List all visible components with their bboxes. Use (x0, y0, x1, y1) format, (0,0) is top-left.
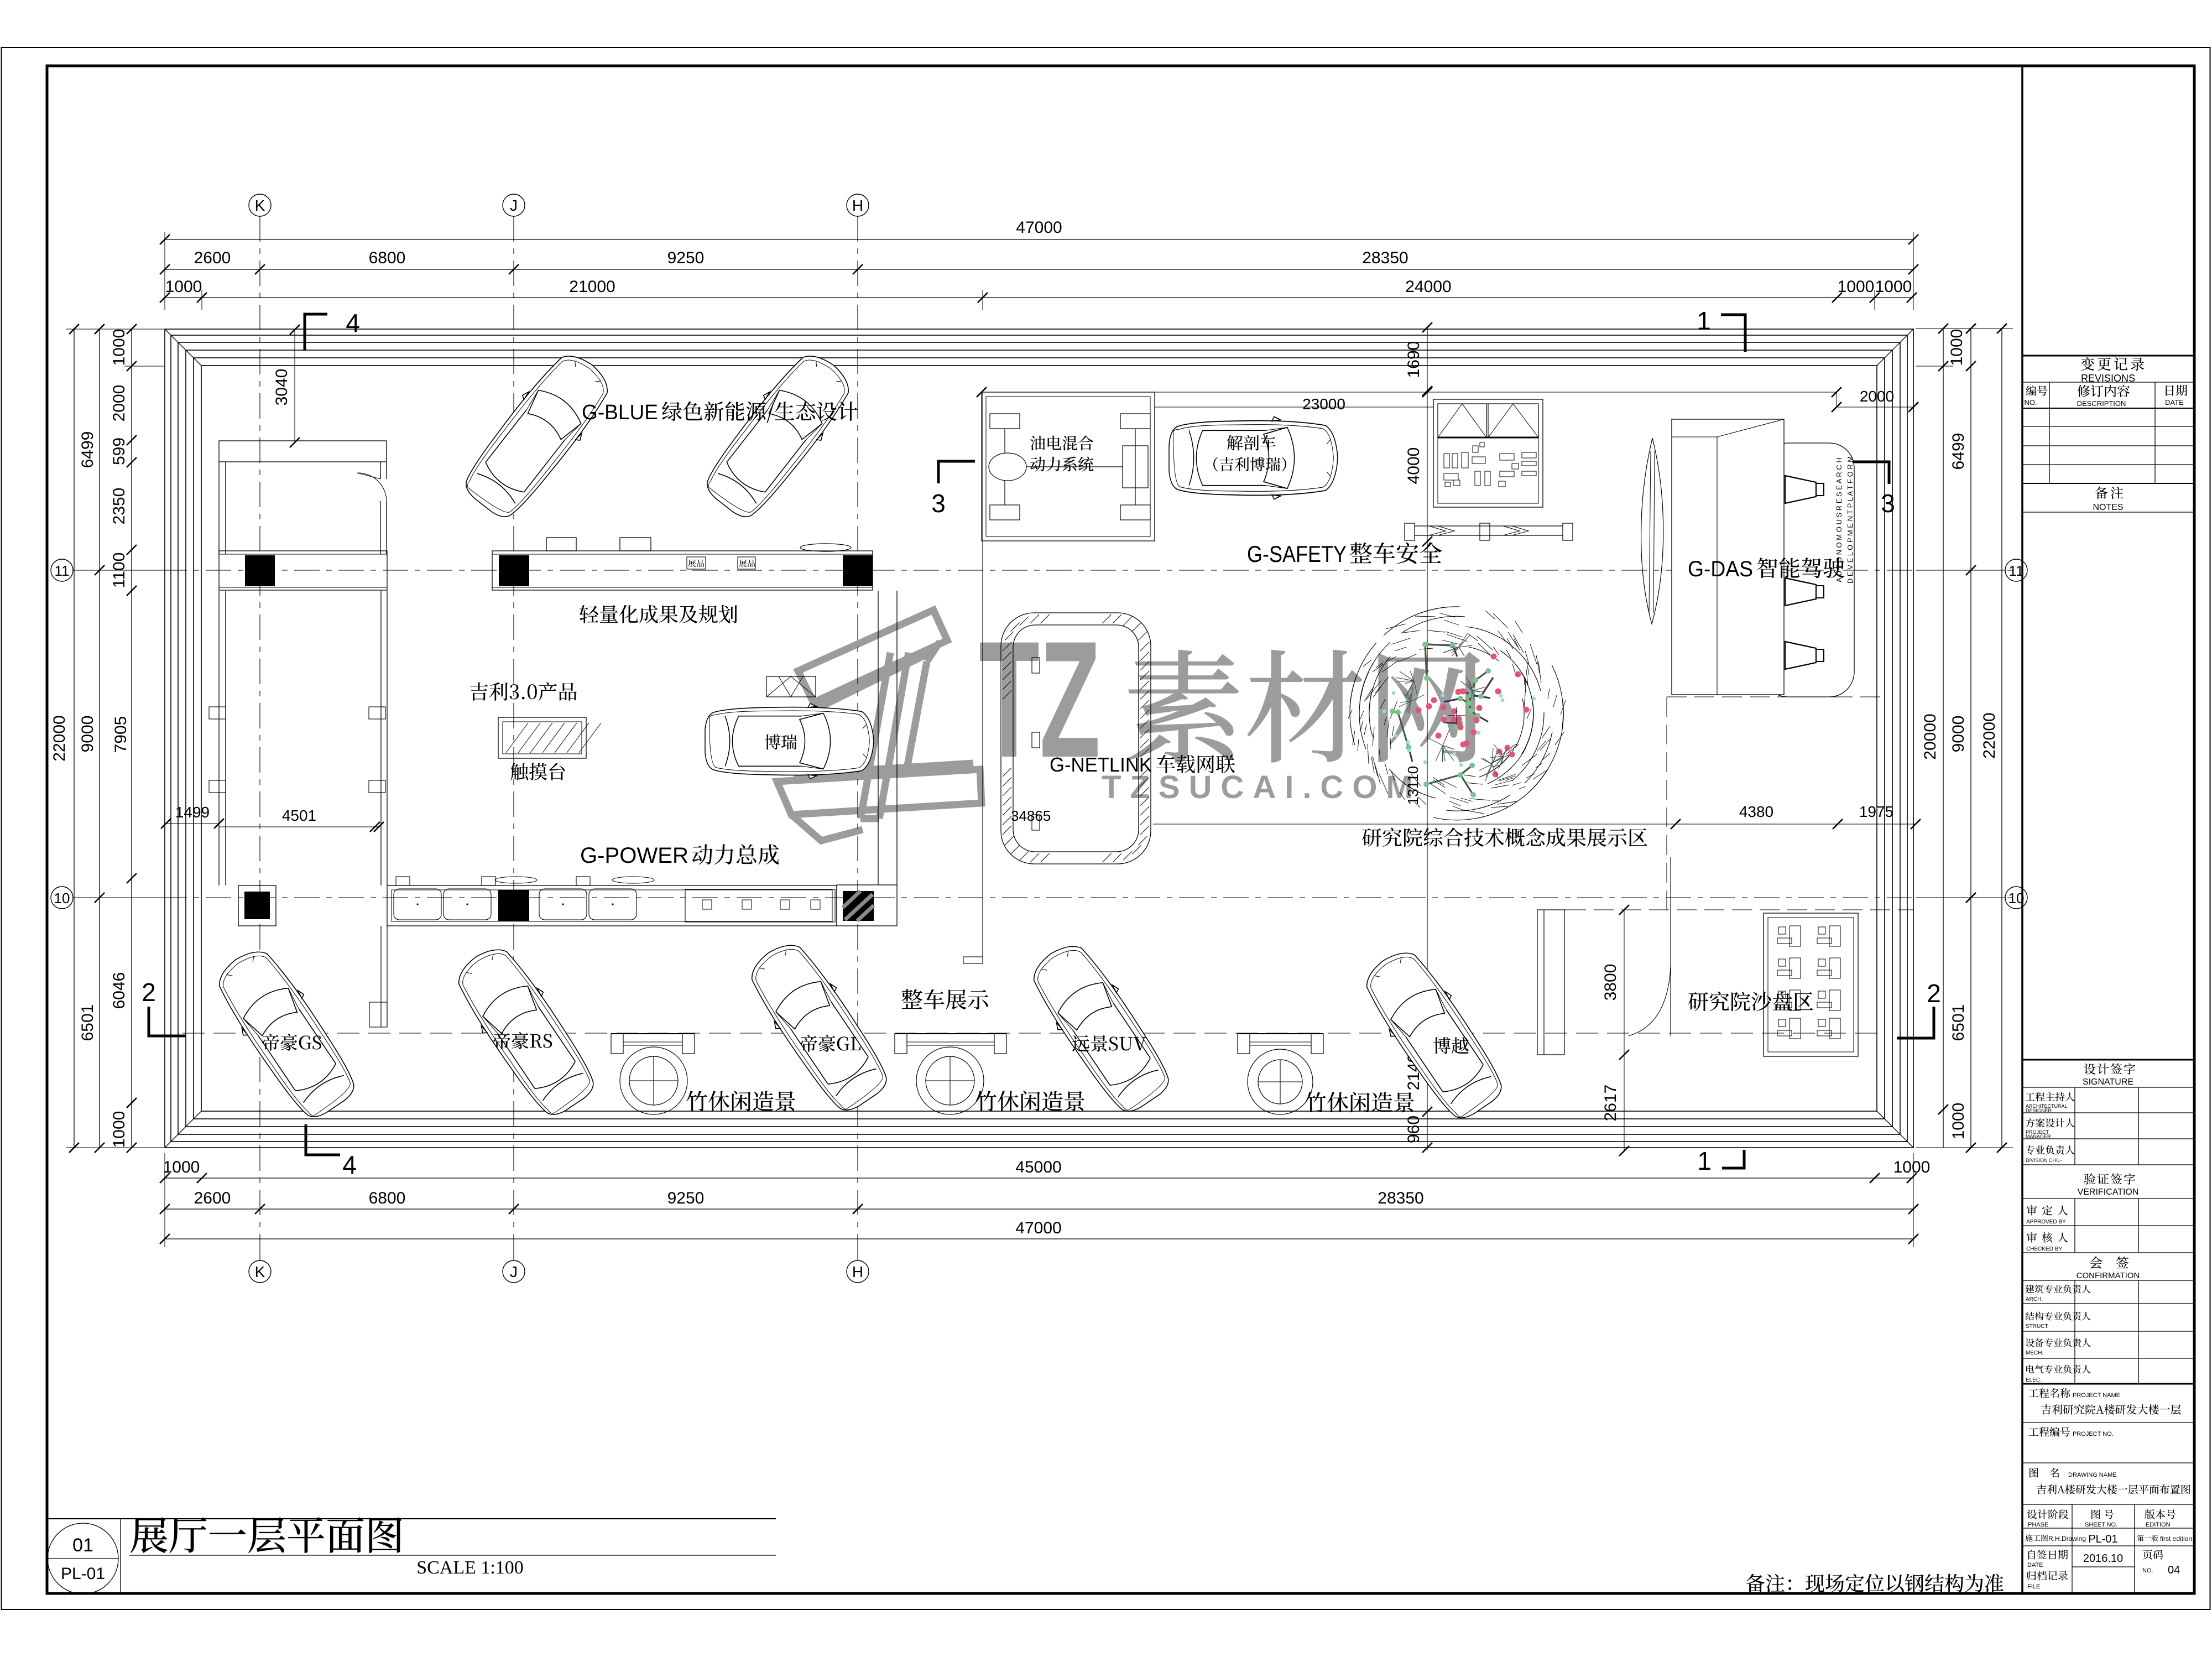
svg-text:2000: 2000 (1860, 388, 1894, 405)
svg-text:PL-01: PL-01 (61, 1565, 105, 1583)
svg-text:K: K (255, 1263, 265, 1280)
svg-text:04: 04 (2168, 1564, 2180, 1576)
svg-text:NOTES: NOTES (2093, 503, 2123, 512)
svg-text:SCALE 1:100: SCALE 1:100 (416, 1557, 524, 1578)
svg-text:6800: 6800 (369, 249, 406, 267)
svg-text:9000: 9000 (1949, 716, 1968, 753)
svg-text:1000: 1000 (1875, 278, 1912, 296)
svg-text:SIGNATURE: SIGNATURE (2083, 1077, 2133, 1087)
svg-text:6800: 6800 (369, 1189, 406, 1207)
svg-text:4: 4 (346, 309, 360, 337)
svg-text:1000: 1000 (1893, 1158, 1931, 1176)
svg-text:1000: 1000 (1838, 278, 1875, 296)
svg-text:DESCRIPTION: DESCRIPTION (2077, 399, 2126, 408)
svg-text:47000: 47000 (1015, 1219, 1061, 1237)
svg-text:1000: 1000 (110, 329, 128, 366)
svg-text:20000: 20000 (1921, 713, 1939, 759)
svg-text:9250: 9250 (667, 1189, 705, 1207)
svg-text:PROJECT NO.: PROJECT NO. (2073, 1431, 2114, 1437)
svg-text:1000: 1000 (165, 278, 202, 296)
svg-text:H: H (852, 1263, 863, 1280)
svg-text:NO.: NO. (2142, 1567, 2153, 1574)
svg-text:45000: 45000 (1015, 1158, 1061, 1176)
svg-text:3040: 3040 (273, 369, 291, 406)
svg-text:4501: 4501 (282, 807, 316, 824)
svg-text:2000: 2000 (110, 385, 128, 422)
svg-text:6501: 6501 (1949, 1004, 1968, 1041)
svg-text:599: 599 (110, 437, 128, 465)
svg-text:1975: 1975 (1859, 803, 1893, 820)
svg-text:2: 2 (142, 978, 156, 1007)
svg-text:ARCH.: ARCH. (2026, 1296, 2043, 1302)
svg-text:11: 11 (55, 562, 70, 579)
svg-text:4380: 4380 (1739, 803, 1773, 820)
svg-text:DATE: DATE (2027, 1562, 2043, 1569)
svg-text:MECH.: MECH. (2026, 1350, 2043, 1356)
svg-text:VERIFICATION: VERIFICATION (2078, 1187, 2139, 1197)
svg-text:STRUCT: STRUCT (2026, 1324, 2048, 1330)
svg-text:K: K (255, 197, 265, 214)
svg-text:NO.: NO. (2024, 398, 2037, 407)
svg-text:CHECKED BY: CHECKED BY (2026, 1246, 2062, 1252)
svg-text:EDITION: EDITION (2146, 1522, 2171, 1528)
svg-text:1000: 1000 (163, 1158, 200, 1176)
svg-text:DIVISION CHIL-: DIVISION CHIL- (2026, 1158, 2062, 1163)
svg-text:2350: 2350 (110, 488, 128, 525)
svg-text:H: H (852, 197, 863, 214)
svg-text:34865: 34865 (1011, 807, 1051, 824)
svg-text:DATE: DATE (2165, 398, 2184, 407)
svg-text:21000: 21000 (569, 278, 615, 296)
svg-text:CONFIRMATION: CONFIRMATION (2077, 1271, 2140, 1280)
svg-text:G-POWER: G-POWER (580, 843, 688, 868)
svg-text:6499: 6499 (79, 431, 97, 468)
svg-text:PHASE: PHASE (2028, 1522, 2048, 1528)
svg-text:1: 1 (1697, 306, 1711, 335)
svg-text:47000: 47000 (1016, 218, 1062, 237)
svg-text:960: 960 (1405, 1116, 1423, 1143)
svg-text:1000: 1000 (1949, 1103, 1968, 1140)
svg-text:first edition: first edition (2160, 1535, 2192, 1543)
svg-text:13110: 13110 (1405, 766, 1421, 805)
svg-text:2617: 2617 (1601, 1085, 1620, 1122)
svg-text:G-SAFETY: G-SAFETY (1247, 541, 1347, 567)
svg-text:6046: 6046 (110, 972, 128, 1009)
svg-text:28350: 28350 (1362, 249, 1408, 267)
svg-text:9250: 9250 (667, 249, 705, 267)
svg-text:ELEC.: ELEC. (2026, 1377, 2042, 1383)
svg-text:10: 10 (54, 890, 70, 906)
svg-text:FILE: FILE (2027, 1583, 2040, 1590)
svg-text:G-DAS: G-DAS (1688, 557, 1753, 581)
svg-text:4: 4 (342, 1150, 357, 1179)
svg-text:1499: 1499 (175, 804, 210, 821)
svg-text:DRAWING NAME: DRAWING NAME (2068, 1472, 2117, 1478)
svg-text:9000: 9000 (79, 716, 97, 753)
svg-text:SHEET NO.: SHEET NO. (2085, 1522, 2117, 1528)
svg-text:4000: 4000 (1405, 447, 1423, 484)
svg-text:3: 3 (931, 489, 946, 518)
svg-text:G-BLUE: G-BLUE (582, 401, 658, 424)
svg-text:28350: 28350 (1378, 1189, 1423, 1207)
svg-text:J: J (510, 1263, 518, 1280)
svg-text:G-NETLINK: G-NETLINK (1050, 753, 1152, 776)
svg-text:2600: 2600 (194, 249, 231, 267)
svg-text:3: 3 (1881, 489, 1895, 518)
svg-text:APPROVED BY: APPROVED BY (2026, 1219, 2066, 1225)
svg-text:2: 2 (1927, 979, 1941, 1008)
svg-text:22000: 22000 (1980, 712, 1999, 758)
svg-text:1690: 1690 (1405, 341, 1423, 378)
svg-text:1000: 1000 (1948, 329, 1966, 366)
svg-text:PL-01: PL-01 (2088, 1533, 2117, 1545)
svg-text:1: 1 (1697, 1147, 1712, 1175)
svg-text:PROJECT NAME: PROJECT NAME (2073, 1392, 2120, 1399)
svg-text:6499: 6499 (1949, 433, 1968, 470)
svg-text:2016.10: 2016.10 (2083, 1552, 2123, 1565)
svg-text:J: J (510, 197, 518, 214)
svg-text:D E V E L O P M E N T P L A: D E V E L O P M E N T P L A T F O R M (1846, 456, 1854, 583)
svg-text:1000: 1000 (110, 1111, 128, 1148)
svg-text:R.H.Drawing: R.H.Drawing (2048, 1535, 2086, 1543)
svg-text:22000: 22000 (50, 715, 69, 761)
svg-text:24000: 24000 (1405, 278, 1451, 296)
svg-text:23000: 23000 (1302, 395, 1345, 413)
svg-text:2600: 2600 (194, 1189, 231, 1207)
svg-text:7905: 7905 (112, 716, 130, 753)
svg-text:3800: 3800 (1601, 964, 1620, 1001)
svg-text:6501: 6501 (79, 1004, 97, 1041)
svg-text:01: 01 (72, 1535, 93, 1556)
